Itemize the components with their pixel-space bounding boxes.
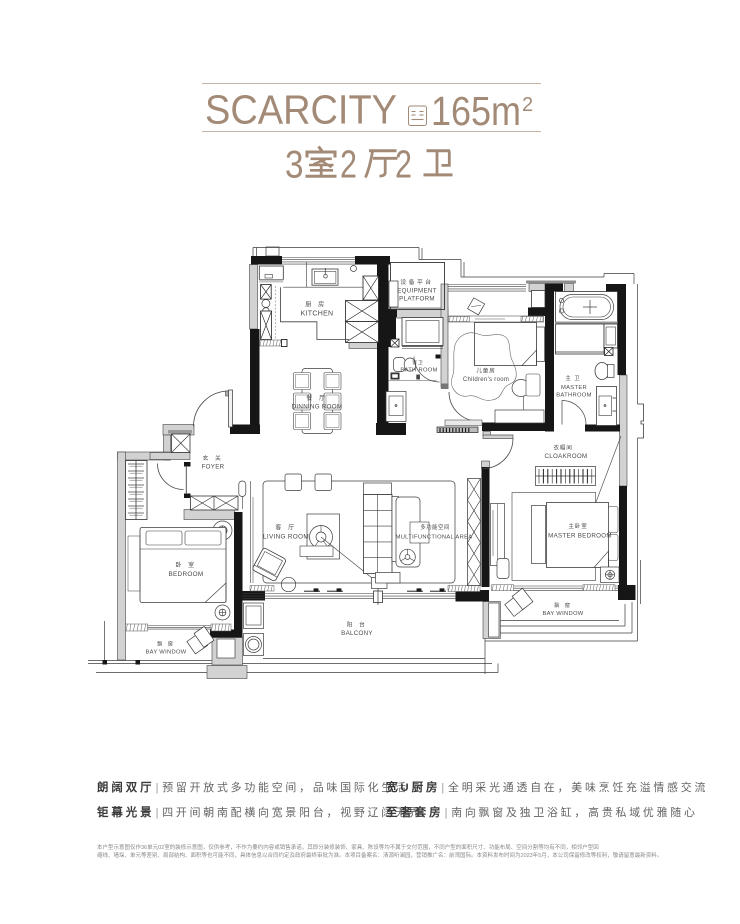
svg-text:FOYER: FOYER [202,464,225,471]
svg-text:客 厅: 客 厅 [275,524,296,532]
svg-text:BAY WINDOW: BAY WINDOW [145,650,186,656]
svg-text:MASTER: MASTER [561,385,587,391]
svg-text:165m: 165m [431,88,521,134]
svg-text:BATHROOM: BATHROOM [556,393,591,399]
svg-text:阳 台: 阳 台 [347,621,368,629]
svg-text:主卧室: 主卧室 [568,522,587,530]
svg-text:BATH ROOM: BATH ROOM [400,368,437,374]
svg-text:儿童房: 儿童房 [476,367,495,375]
svg-text:BALCONY: BALCONY [341,630,373,637]
svg-text:卧 室: 卧 室 [175,561,196,569]
svg-text:厨 房: 厨 房 [305,301,326,309]
svg-text:2: 2 [395,143,412,186]
svg-text:餐 厅: 餐 厅 [306,394,327,402]
svg-text:2: 2 [340,143,357,186]
svg-text:客卫: 客卫 [412,359,424,366]
svg-text:PLATFORM: PLATFORM [399,296,435,303]
svg-text:MASTER BEDROOM: MASTER BEDROOM [548,533,612,540]
svg-text:LIVING ROOM: LIVING ROOM [263,534,309,541]
svg-text:飘 窗: 飘 窗 [157,640,175,648]
svg-text:2: 2 [522,94,533,116]
svg-text:EQUIPMENT: EQUIPMENT [397,288,436,295]
svg-text:3: 3 [285,143,304,186]
svg-text:多功能空间: 多功能空间 [420,523,449,531]
svg-text:衣帽间: 衣帽间 [553,444,572,452]
svg-text:Children's room: Children's room [463,377,509,383]
svg-text:BAY WINDOW: BAY WINDOW [542,611,583,617]
svg-text:飘 窗: 飘 窗 [554,601,572,609]
svg-text:BEDROOM: BEDROOM [168,571,203,578]
svg-text:设备平台: 设备平台 [400,278,433,286]
svg-text:MULTIFUNCTIONAL AREA: MULTIFUNCTIONAL AREA [396,535,473,541]
svg-text:KITCHEN: KITCHEN [301,311,334,318]
svg-text:CLOAKROOM: CLOAKROOM [545,453,588,460]
svg-text:DINNING ROOM: DINNING ROOM [292,404,343,411]
svg-text:SCARCITY: SCARCITY [205,87,397,133]
svg-text:主 卫: 主 卫 [565,374,580,382]
svg-text:玄 关: 玄 关 [203,454,224,462]
